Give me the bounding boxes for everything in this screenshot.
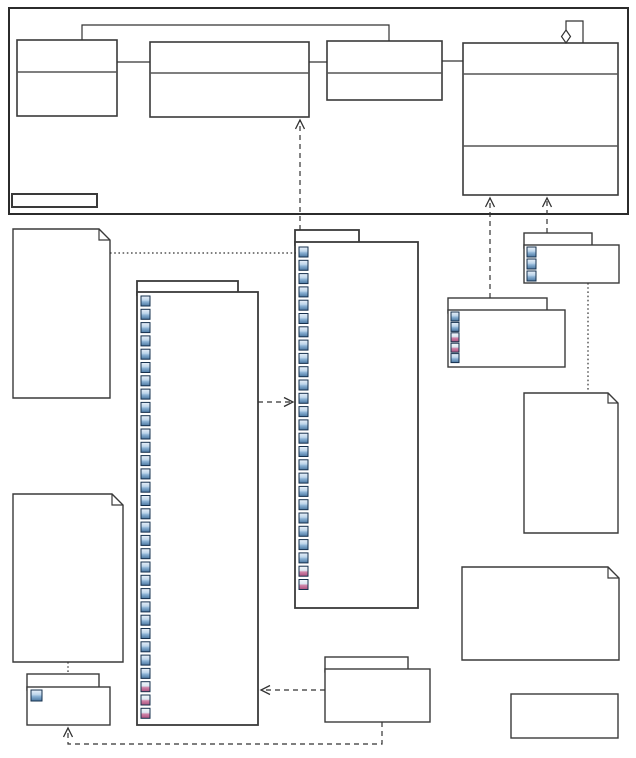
member-blue-icon xyxy=(451,354,459,363)
frame-name-box[interactable] xyxy=(12,194,97,207)
member-blue-icon xyxy=(141,482,150,492)
class-node-3[interactable] xyxy=(327,41,442,100)
member-blue-icon xyxy=(299,526,308,536)
member-blue-icon xyxy=(451,322,459,331)
bottom-right-box[interactable] xyxy=(511,694,618,738)
note-node-2-body xyxy=(524,393,618,533)
member-blue-icon xyxy=(141,589,150,599)
member-blue-icon xyxy=(141,363,150,373)
class-node-2[interactable] xyxy=(150,42,309,117)
package-node-b[interactable] xyxy=(295,230,418,608)
member-blue-icon xyxy=(141,429,150,439)
member-blue-icon xyxy=(299,553,308,563)
member-blue-icon xyxy=(141,655,150,665)
member-blue-icon xyxy=(31,690,42,701)
member-blue-icon xyxy=(141,469,150,479)
member-blue-icon xyxy=(299,380,308,390)
package-node-f[interactable] xyxy=(325,657,430,722)
note-node-1-body xyxy=(13,229,110,398)
member-blue-icon xyxy=(141,309,150,319)
member-blue-icon xyxy=(141,456,150,466)
member-blue-icon xyxy=(141,496,150,506)
member-blue-icon xyxy=(299,433,308,443)
member-blue-icon xyxy=(141,509,150,519)
member-blue-icon xyxy=(299,447,308,457)
member-blue-icon xyxy=(299,327,308,337)
package-node-f-body xyxy=(325,669,430,722)
member-blue-icon xyxy=(299,314,308,324)
member-blue-icon xyxy=(141,642,150,652)
package-node-c[interactable] xyxy=(524,233,619,283)
member-blue-icon xyxy=(299,420,308,430)
member-blue-icon xyxy=(527,247,536,257)
member-blue-icon xyxy=(141,522,150,532)
member-blue-icon xyxy=(299,407,308,417)
member-blue-icon xyxy=(299,500,308,510)
member-blue-icon xyxy=(299,460,308,470)
package-node-d-body xyxy=(448,310,565,367)
member-blue-icon xyxy=(141,549,150,559)
class-node-1[interactable] xyxy=(17,40,117,116)
member-blue-icon xyxy=(141,668,150,678)
member-blue-icon xyxy=(299,340,308,350)
member-blue-icon xyxy=(527,271,536,281)
member-blue-icon xyxy=(141,323,150,333)
member-blue-icon xyxy=(299,247,308,257)
package-node-a-body xyxy=(137,292,258,725)
note-node-2[interactable] xyxy=(524,393,618,533)
member-blue-icon xyxy=(141,602,150,612)
class-node-2-body xyxy=(150,42,309,117)
member-blue-icon xyxy=(299,513,308,523)
member-blue-icon xyxy=(141,442,150,452)
diagram-viewport xyxy=(0,0,636,758)
member-blue-icon xyxy=(299,300,308,310)
member-blue-icon xyxy=(141,296,150,306)
member-pink-icon xyxy=(451,333,459,342)
member-blue-icon xyxy=(141,562,150,572)
note-node-4-body xyxy=(462,567,619,660)
member-blue-icon xyxy=(141,376,150,386)
class-node-3-body xyxy=(327,41,442,100)
member-blue-icon xyxy=(299,353,308,363)
package-node-c-body xyxy=(524,245,619,283)
member-blue-icon xyxy=(141,535,150,545)
member-pink-icon xyxy=(141,695,150,705)
uml-diagram-canvas[interactable] xyxy=(0,0,636,758)
member-blue-icon xyxy=(141,416,150,426)
package-node-b-body xyxy=(295,242,418,608)
package-node-e[interactable] xyxy=(27,674,110,725)
note-node-3-body xyxy=(13,494,123,662)
member-blue-icon xyxy=(299,367,308,377)
member-blue-icon xyxy=(141,629,150,639)
member-blue-icon xyxy=(299,473,308,483)
member-blue-icon xyxy=(141,389,150,399)
member-blue-icon xyxy=(299,486,308,496)
member-blue-icon xyxy=(299,274,308,284)
member-blue-icon xyxy=(299,287,308,297)
member-blue-icon xyxy=(141,615,150,625)
member-blue-icon xyxy=(141,336,150,346)
member-pink-icon xyxy=(299,580,308,590)
member-blue-icon xyxy=(451,312,459,321)
package-node-d[interactable] xyxy=(448,298,565,367)
member-blue-icon xyxy=(299,540,308,550)
member-pink-icon xyxy=(141,708,150,718)
package-node-a[interactable] xyxy=(137,281,258,725)
member-blue-icon xyxy=(527,259,536,269)
member-blue-icon xyxy=(299,393,308,403)
class-node-1-body xyxy=(17,40,117,116)
member-blue-icon xyxy=(141,349,150,359)
class-node-4-body xyxy=(463,43,618,195)
member-blue-icon xyxy=(141,402,150,412)
note-node-4[interactable] xyxy=(462,567,619,660)
member-blue-icon xyxy=(141,575,150,585)
member-pink-icon xyxy=(451,343,459,352)
member-blue-icon xyxy=(299,260,308,270)
member-pink-icon xyxy=(141,682,150,692)
note-node-1[interactable] xyxy=(13,229,110,398)
member-pink-icon xyxy=(299,566,308,576)
note-node-3[interactable] xyxy=(13,494,123,662)
class-node-4[interactable] xyxy=(463,43,618,195)
